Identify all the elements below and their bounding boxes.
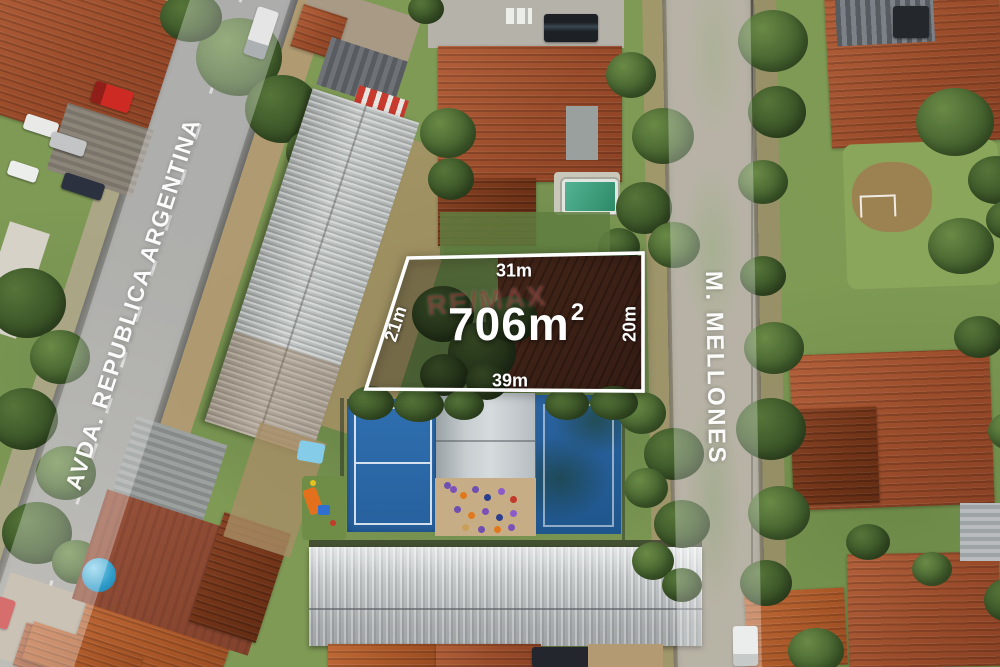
plot-dim-bottom: 39m [492,371,528,392]
aerial-photo: AVDA. REPUBLICA ARGENTINA M. MELLONES RE… [0,0,1000,667]
plot-dim-top: 31m [496,261,532,282]
plot-area-exponent: 2 [571,299,585,326]
plot-area-value: 706m [448,298,570,350]
plot-area-label: 706m2 [448,297,584,351]
plot-dim-right: 20m [620,306,641,342]
